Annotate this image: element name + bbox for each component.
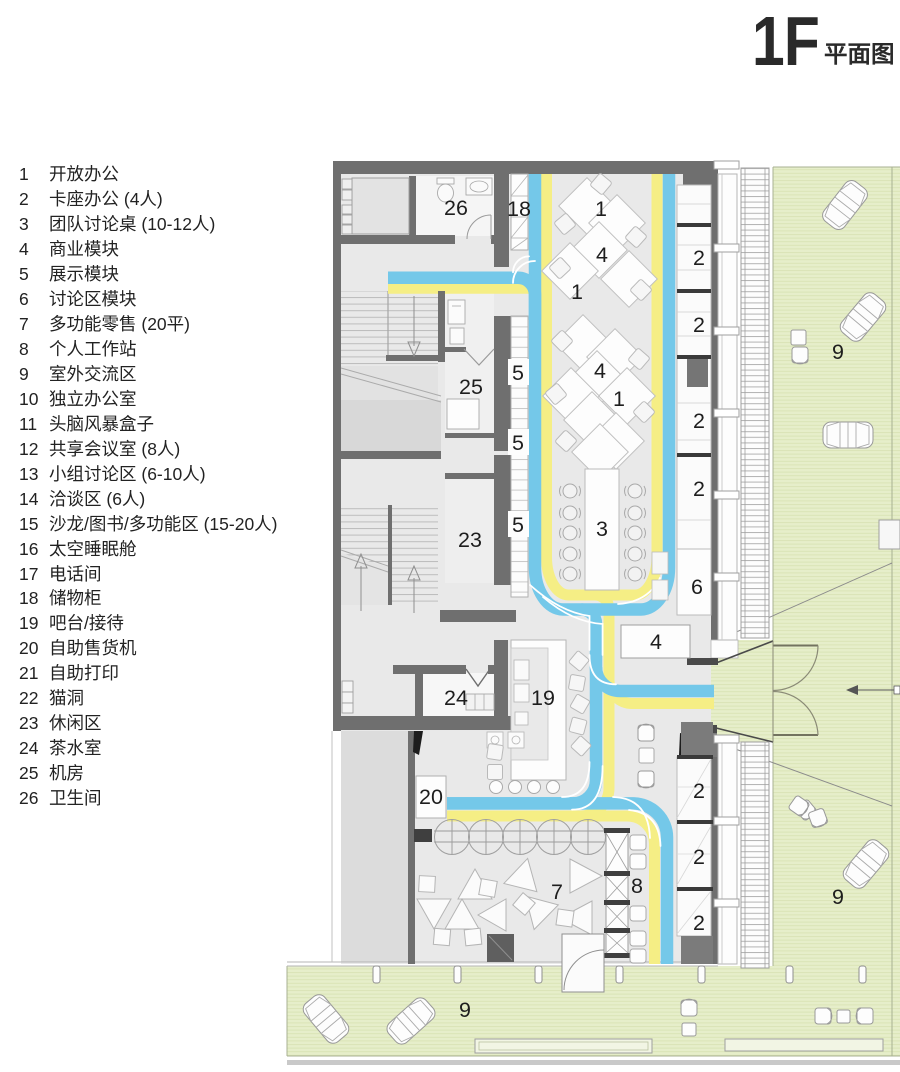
svg-text:1: 1 (571, 280, 583, 304)
svg-text:5: 5 (512, 361, 524, 385)
svg-text:9: 9 (832, 340, 844, 364)
svg-text:2: 2 (693, 246, 705, 270)
svg-text:2: 2 (693, 845, 705, 869)
svg-text:9: 9 (459, 998, 471, 1022)
svg-text:2: 2 (693, 477, 705, 501)
svg-text:20: 20 (419, 785, 443, 809)
svg-text:2: 2 (693, 779, 705, 803)
svg-text:2: 2 (693, 911, 705, 935)
svg-text:6: 6 (691, 575, 703, 599)
svg-text:24: 24 (444, 686, 468, 710)
svg-text:4: 4 (596, 243, 608, 267)
svg-text:2: 2 (693, 409, 705, 433)
svg-text:7: 7 (551, 880, 563, 904)
svg-text:19: 19 (531, 686, 555, 710)
svg-text:8: 8 (631, 874, 643, 898)
svg-text:1: 1 (595, 197, 607, 221)
svg-text:18: 18 (507, 197, 531, 221)
svg-text:3: 3 (596, 517, 608, 541)
svg-text:4: 4 (594, 359, 606, 383)
svg-text:26: 26 (444, 196, 468, 220)
svg-text:2: 2 (693, 313, 705, 337)
svg-text:4: 4 (650, 630, 662, 654)
svg-text:1: 1 (613, 387, 625, 411)
svg-text:23: 23 (458, 528, 482, 552)
svg-text:9: 9 (832, 885, 844, 909)
svg-text:5: 5 (512, 431, 524, 455)
svg-text:5: 5 (512, 513, 524, 537)
svg-text:25: 25 (459, 375, 483, 399)
